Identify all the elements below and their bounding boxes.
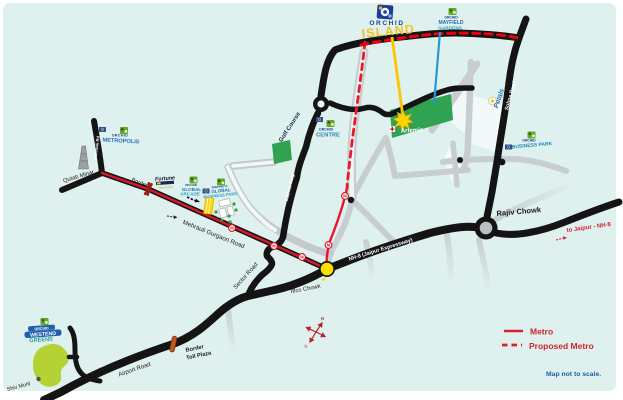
svg-text:M: M: [300, 255, 304, 260]
svg-text:M: M: [272, 244, 276, 249]
svg-text:ARCADE: ARCADE: [180, 191, 200, 196]
svg-text:M: M: [343, 194, 347, 199]
svg-text:Artemis: Artemis: [401, 127, 424, 134]
svg-text:Proposed Metro: Proposed Metro: [529, 341, 594, 351]
svg-text:MAYFIELD: MAYFIELD: [438, 20, 463, 26]
svg-text:CENTRE: CENTRE: [316, 133, 340, 139]
svg-text:Map not to scale.: Map not to scale.: [546, 371, 601, 378]
svg-text:Metro: Metro: [530, 327, 553, 337]
svg-text:M: M: [230, 226, 234, 231]
svg-text:ORCHID: ORCHID: [319, 128, 334, 132]
svg-text:ORCHID: ORCHID: [444, 15, 458, 19]
svg-text:GARDENS: GARDENS: [438, 25, 463, 31]
svg-text:M: M: [327, 243, 331, 248]
svg-text:ORCHID: ORCHID: [112, 134, 129, 138]
